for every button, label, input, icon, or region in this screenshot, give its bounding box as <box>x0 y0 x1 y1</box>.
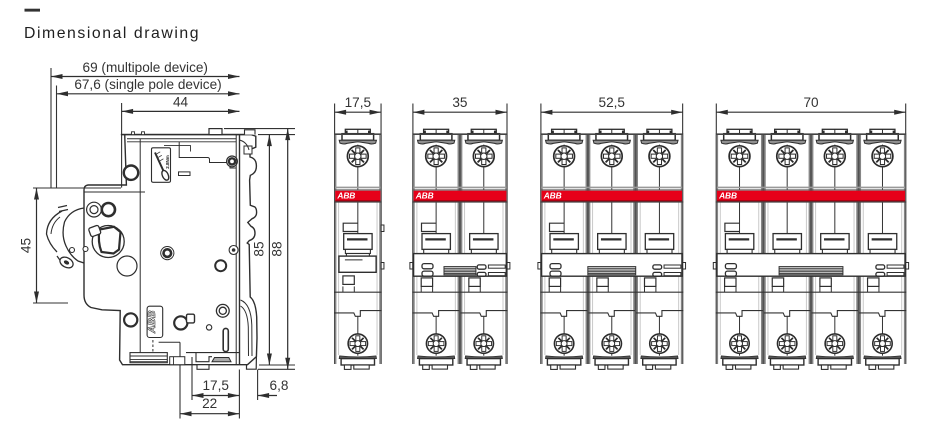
svg-text:2.8Nm: 2.8Nm <box>165 155 170 169</box>
svg-text:ABB: ABB <box>336 191 355 201</box>
svg-text:35: 35 <box>452 95 467 110</box>
svg-text:85: 85 <box>251 241 266 256</box>
svg-text:ABB: ABB <box>718 191 737 201</box>
svg-text:22: 22 <box>202 396 217 411</box>
svg-text:ABB: ABB <box>415 191 434 201</box>
svg-text:45: 45 <box>19 238 34 253</box>
svg-text:ABB: ABB <box>543 191 562 201</box>
svg-text:69 (multipole device): 69 (multipole device) <box>83 60 208 75</box>
svg-text:67,6 (single pole device): 67,6 (single pole device) <box>74 77 221 92</box>
svg-text:44: 44 <box>173 95 189 110</box>
svg-text:6,8: 6,8 <box>270 378 289 393</box>
svg-text:70: 70 <box>803 95 819 110</box>
svg-text:17,5: 17,5 <box>345 95 371 110</box>
svg-text:52,5: 52,5 <box>599 95 625 110</box>
svg-text:ABB: ABB <box>146 310 158 334</box>
svg-text:17,5: 17,5 <box>202 378 228 393</box>
svg-text:88: 88 <box>270 241 285 256</box>
svg-text:Dimensional drawing: Dimensional drawing <box>24 25 200 42</box>
